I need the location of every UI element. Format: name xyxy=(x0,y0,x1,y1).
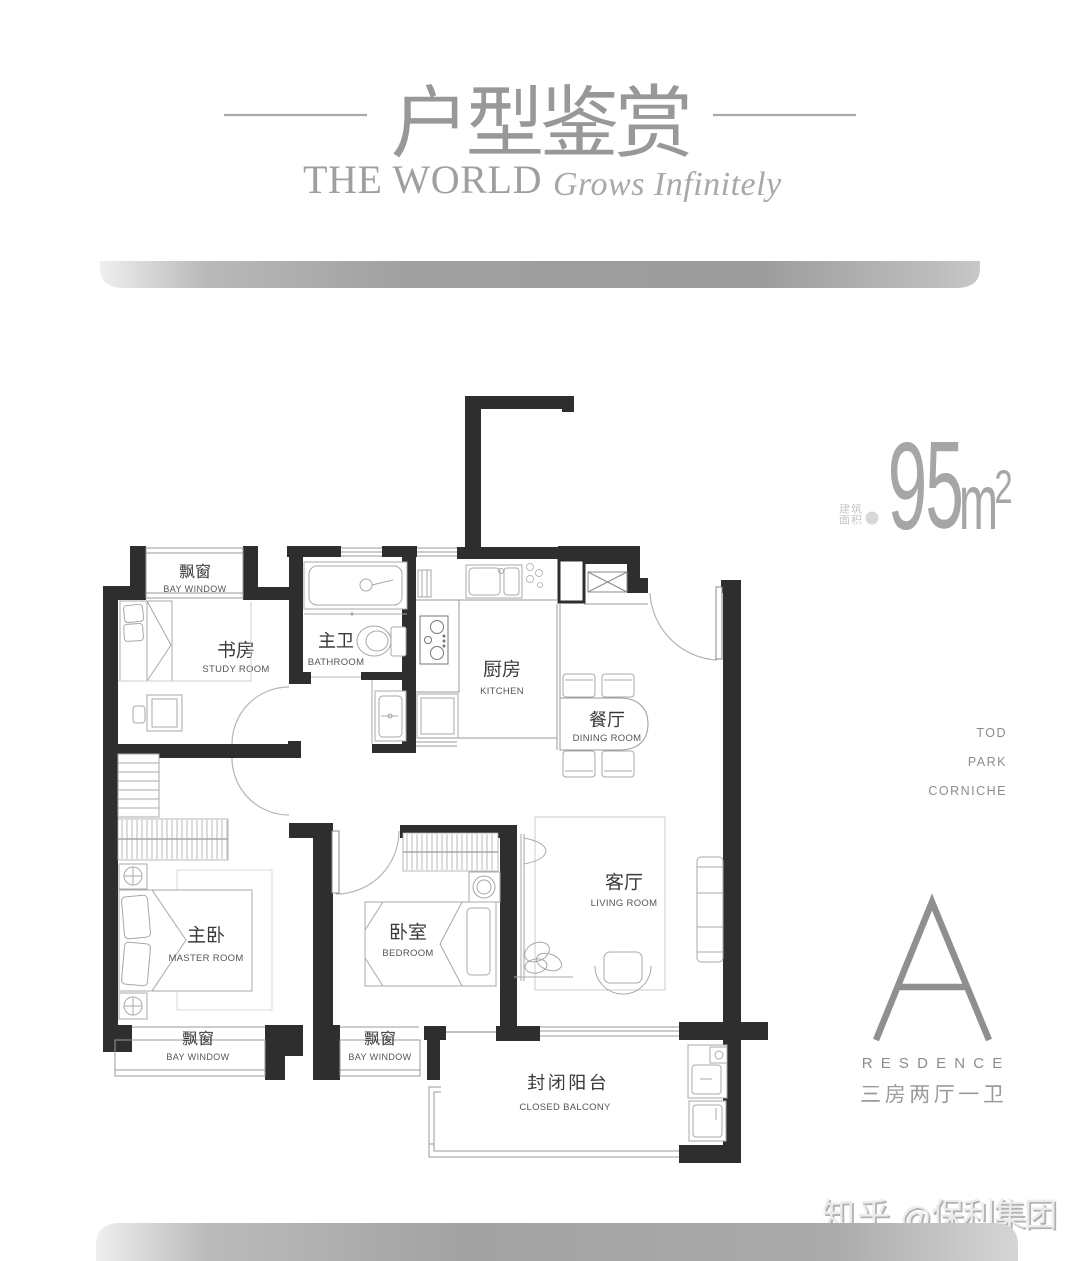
svg-text:DINING ROOM: DINING ROOM xyxy=(573,733,642,744)
svg-text:BEDROOM: BEDROOM xyxy=(382,948,433,959)
svg-text:PARK: PARK xyxy=(968,755,1007,769)
svg-text:KITCHEN: KITCHEN xyxy=(480,686,524,697)
svg-text:CORNICHE: CORNICHE xyxy=(928,784,1007,798)
svg-text:THE WORLD: THE WORLD xyxy=(303,157,542,202)
svg-text:TOD: TOD xyxy=(976,726,1007,740)
svg-text:Grows Infinitely: Grows Infinitely xyxy=(553,166,782,203)
svg-text:STUDY ROOM: STUDY ROOM xyxy=(202,664,269,675)
svg-text:BAY WINDOW: BAY WINDOW xyxy=(348,1052,411,1062)
svg-text:BATHROOM: BATHROOM xyxy=(308,657,365,668)
svg-text:R E S D E N C E: R E S D E N C E xyxy=(862,1055,1005,1072)
svg-text:LIVING ROOM: LIVING ROOM xyxy=(591,898,658,909)
svg-text:BAY WINDOW: BAY WINDOW xyxy=(166,1052,229,1062)
svg-text:MASTER ROOM: MASTER ROOM xyxy=(168,953,243,964)
svg-text:CLOSED BALCONY: CLOSED BALCONY xyxy=(519,1102,611,1113)
svg-text:BAY WINDOW: BAY WINDOW xyxy=(163,584,226,594)
